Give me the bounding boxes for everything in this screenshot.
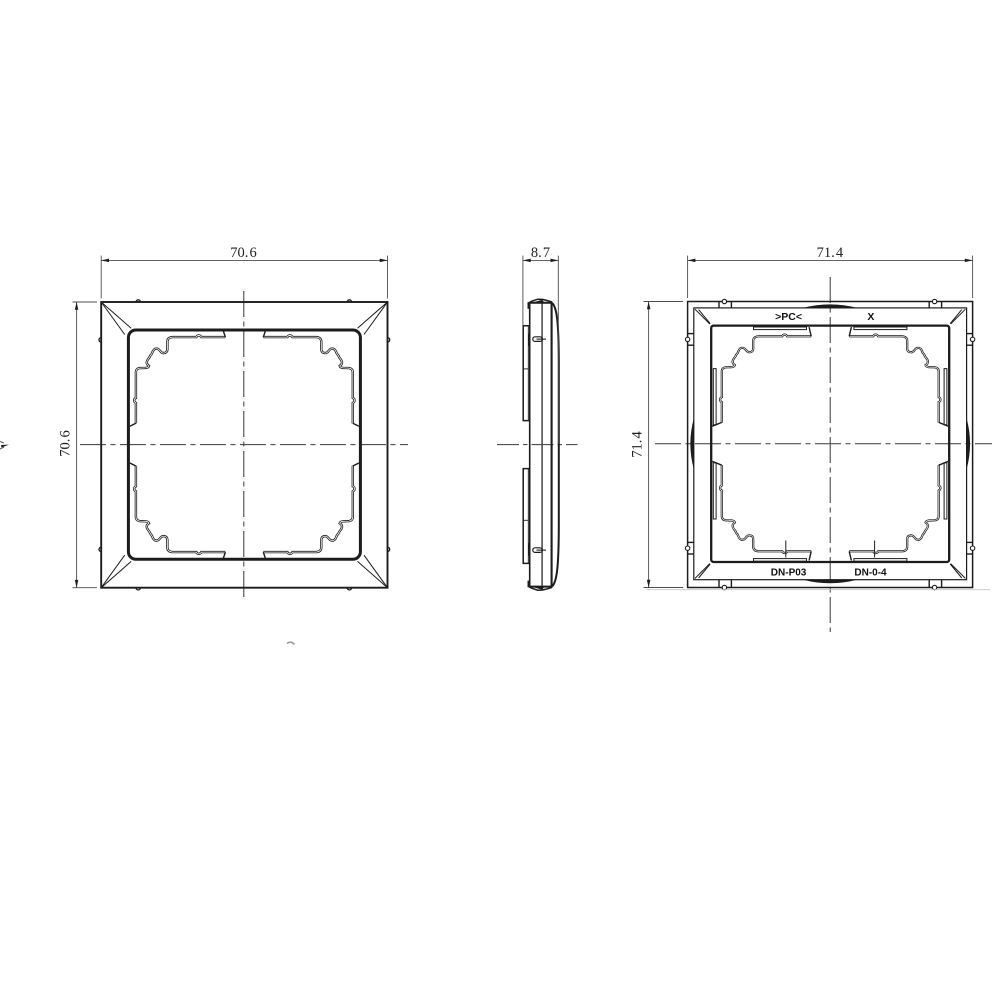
svg-text:>PC<: >PC< (775, 311, 802, 323)
svg-text:70. 6: 70. 6 (230, 245, 257, 261)
svg-text:70. 6: 70. 6 (58, 430, 74, 457)
svg-text:DN-P03: DN-P03 (771, 568, 807, 579)
svg-text:8. 7: 8. 7 (531, 245, 550, 261)
svg-text:X: X (867, 311, 874, 323)
svg-text:DN-0-4: DN-0-4 (854, 568, 887, 579)
svg-text:71. 4: 71. 4 (630, 430, 646, 457)
svg-text:71. 4: 71. 4 (817, 245, 844, 261)
